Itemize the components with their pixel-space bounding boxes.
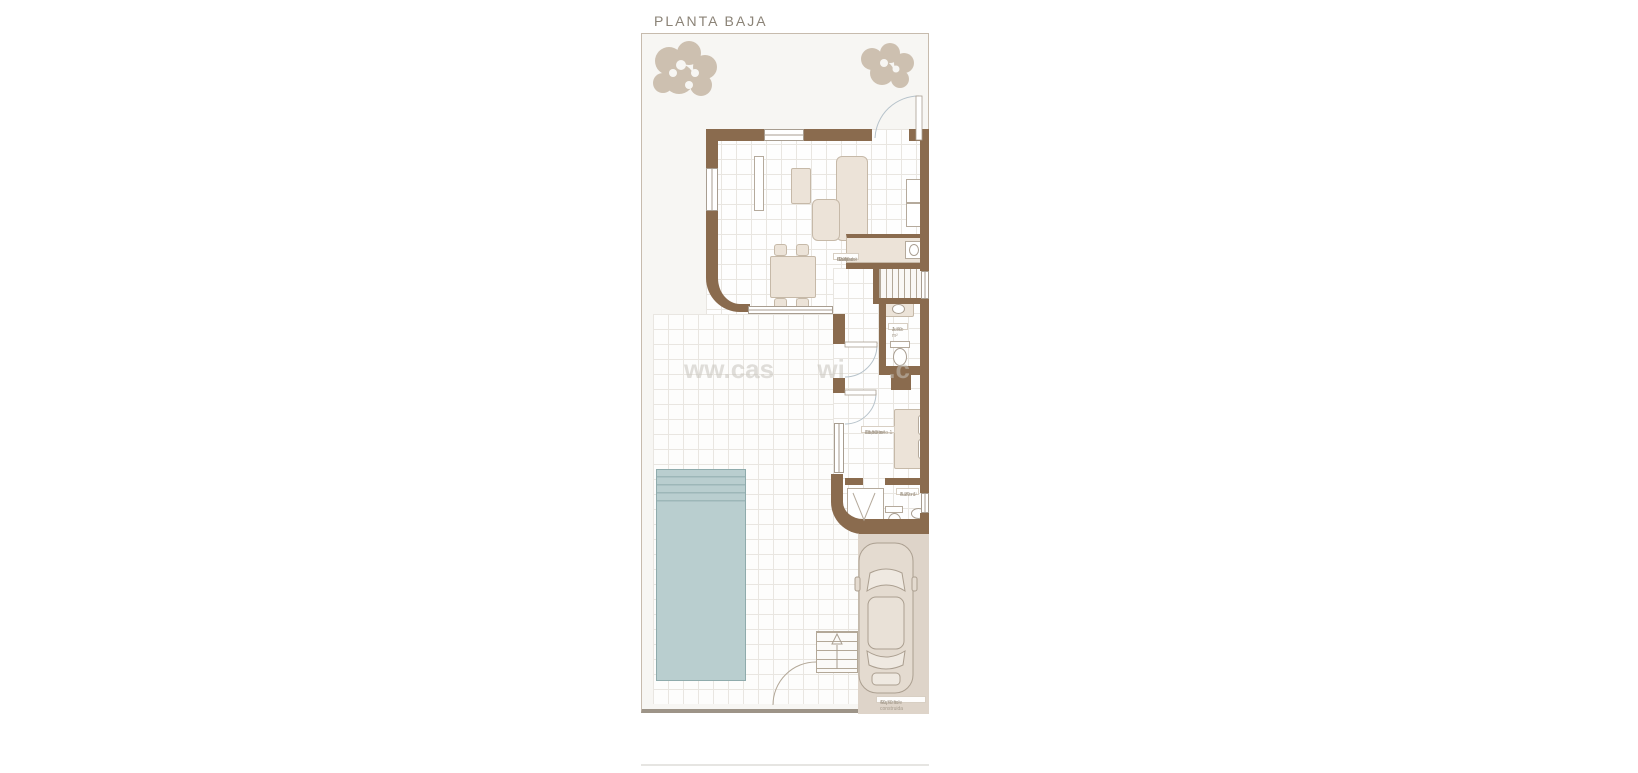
sliding-glass-door [748, 306, 833, 314]
dining-table [770, 256, 816, 298]
chair [796, 244, 809, 256]
room-label-living: Salón Comedor Cocina Hall 32.40 m² [833, 253, 859, 260]
aseo-sink-basin [892, 304, 905, 314]
wall-segment [833, 314, 845, 344]
staircase [879, 268, 927, 299]
window [764, 129, 804, 141]
sofa [836, 156, 868, 241]
wall-segment [873, 268, 879, 301]
window [834, 423, 844, 473]
exterior-steps [816, 631, 858, 673]
driveway [858, 534, 929, 714]
room-label-bedroom: Dormitorio 1 en suite 13,50 m² [861, 426, 895, 433]
wall-segment [706, 141, 718, 168]
sofa-chaise [812, 199, 840, 241]
window [706, 168, 718, 211]
wall-segment [706, 211, 718, 266]
divider [641, 764, 929, 766]
wall-segment [909, 129, 929, 141]
wall-segment [706, 129, 764, 141]
plan-title: PLANTA BAJA [654, 13, 768, 29]
tv-cabinet [791, 168, 811, 204]
window [921, 271, 929, 299]
window [921, 493, 929, 513]
floor-plan: Salón Comedor Cocina Hall 32.40 m² Aseo … [641, 33, 929, 713]
pool [656, 469, 746, 681]
pool-steps [657, 476, 745, 506]
tree-icon [854, 41, 918, 93]
watermark: ww.cas wi .c [684, 354, 924, 385]
room-label-bath: Baño 1 4.20 m² [896, 488, 919, 495]
wall-segment [920, 141, 929, 271]
chair [774, 244, 787, 256]
wall-segment [920, 299, 929, 493]
toilet-tank [890, 341, 910, 348]
wall-segment [846, 263, 929, 269]
room-label-aseo: Aseo 1.70 m² [888, 323, 908, 330]
wall-segment [804, 129, 872, 141]
sideboard [754, 156, 764, 211]
wall-segment [885, 478, 929, 485]
tree-icon [649, 39, 719, 107]
label-built-area: Superficie construida 40,70 m² [876, 696, 926, 703]
toilet-tank [885, 506, 903, 513]
kitchen-sink-basin [909, 244, 919, 256]
